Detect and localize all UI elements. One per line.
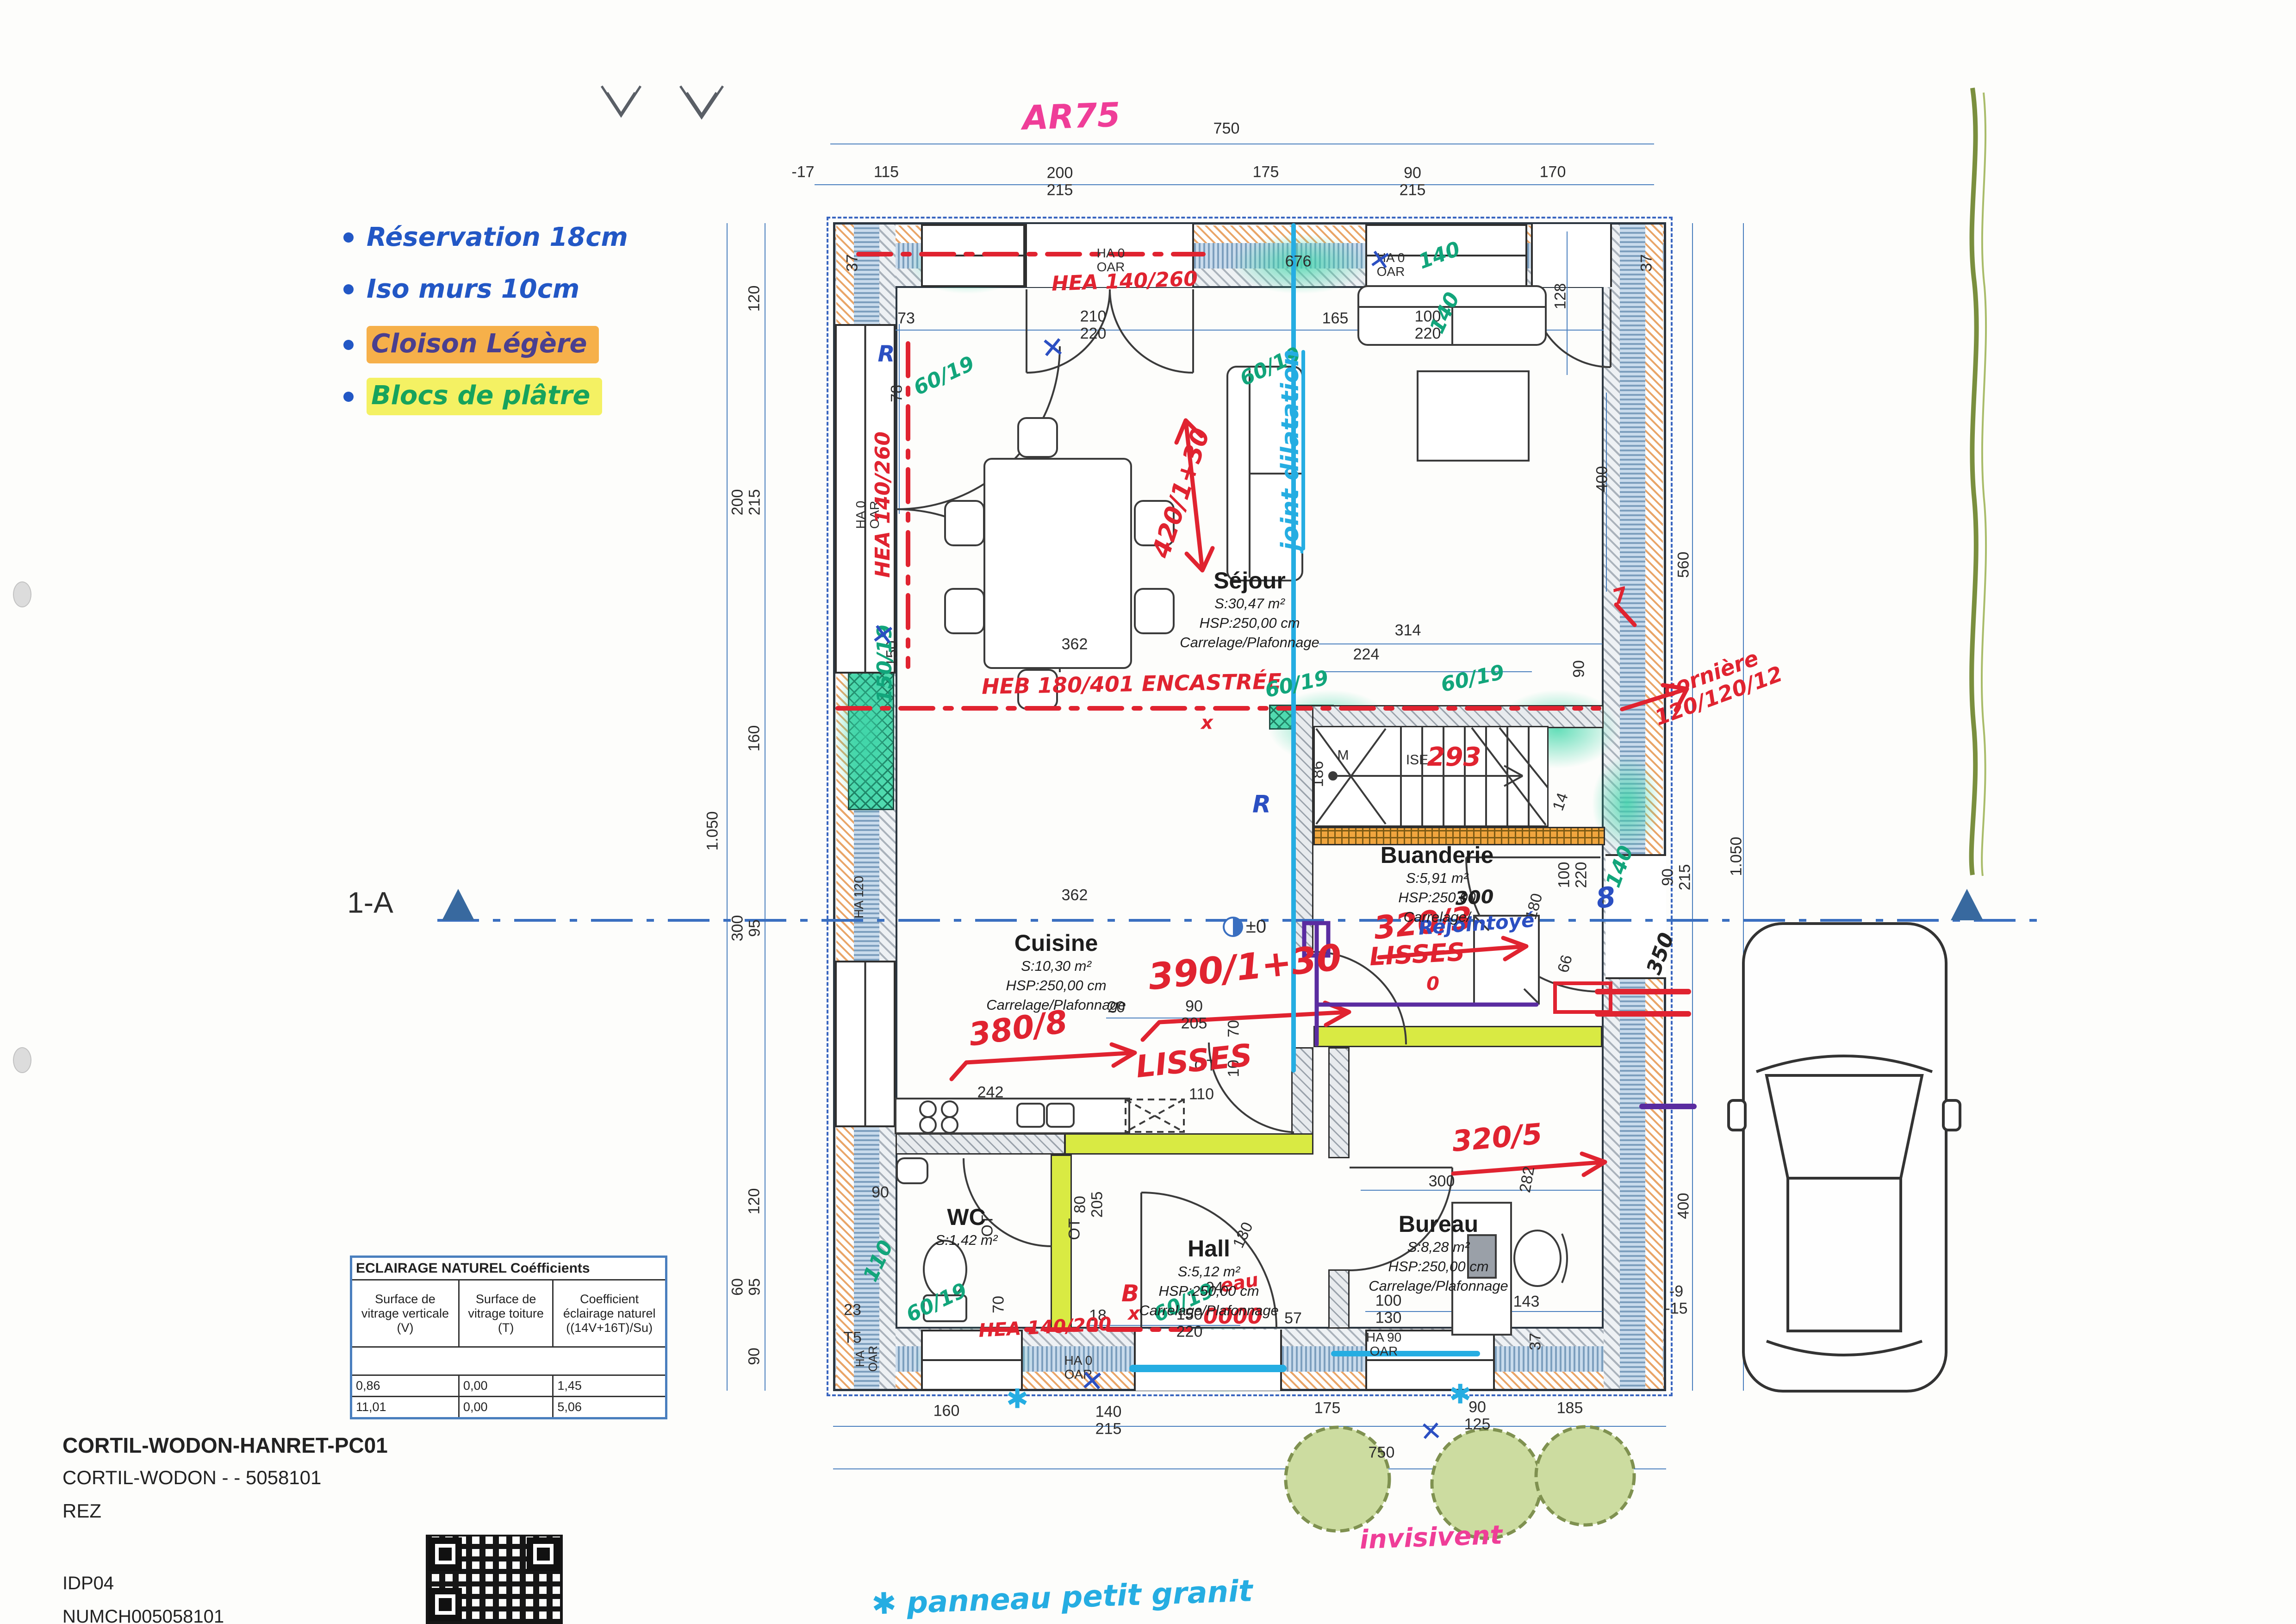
dim-label: M (1338, 748, 1349, 763)
dim-label: 57 (1284, 1310, 1302, 1327)
dining-table (984, 459, 1131, 668)
table-row: 0,860,001,45 (351, 1375, 666, 1397)
dim-label: 175 (1253, 164, 1279, 181)
dim-label: 100 220 (1556, 862, 1589, 888)
table-row: 11,010,005,06 (351, 1397, 666, 1418)
red-label: 320/5 (1451, 1118, 1543, 1157)
room-label-buanderie: BuanderieS:5,91 m²HSP:250,00Carrelage/ (1381, 842, 1494, 927)
dim-label: 143 (1513, 1293, 1540, 1311)
dim-label: T5 (843, 1330, 862, 1347)
title-block-line: NUMCH005058101 (62, 1606, 224, 1624)
note-text: Réservation 18cm (367, 222, 628, 252)
dim-label: 1.050 (704, 811, 722, 850)
chair (945, 589, 984, 633)
dim-label: 90 215 (1659, 864, 1693, 891)
dim-label: 120 (746, 286, 763, 312)
pen-label: ✕ (1079, 1365, 1105, 1398)
dim-label: 1.050 (1728, 837, 1745, 876)
dim-label: HA OAR (853, 1346, 879, 1372)
dim-label: 676 (1285, 253, 1312, 270)
room-label-bureau: BureauS:8,28 m²HSP:250,00 cmCarrelage/Pl… (1369, 1211, 1508, 1296)
coffee-table (1418, 371, 1529, 461)
dim-label: 314 (1395, 622, 1421, 639)
dim-label: 90 (746, 1348, 763, 1365)
chair (1018, 418, 1057, 457)
furniture (896, 286, 1567, 1335)
room-label-cuisine: CuisineS:10,30 m²HSP:250,00 cmCarrelage/… (986, 930, 1126, 1015)
table-cell: 0,00 (459, 1397, 553, 1418)
red-label: x (1128, 1304, 1140, 1324)
bullet-icon (343, 340, 354, 350)
dim-label: 186 (1310, 761, 1327, 787)
dim-label: 300 (1429, 1173, 1455, 1190)
table-header: Surface de vitrage toiture (T) (459, 1280, 553, 1347)
dim-label: 300 95 (729, 915, 763, 942)
red-label: B (1121, 1281, 1139, 1306)
car-top-view-icon (1729, 924, 1960, 1391)
table-cell: 0,86 (351, 1375, 459, 1397)
pen-label: ✕ (869, 618, 897, 652)
red-label: HEB 180/401 ENCASTRÉE (982, 670, 1282, 699)
dim-label: 115 (874, 164, 899, 181)
dim-label: -17 (791, 164, 814, 181)
handwritten-note: Réservation 18cm (343, 222, 628, 252)
table-header: Surface de vitrage verticale (V) (351, 1280, 459, 1347)
dim-label: 90 215 (1400, 164, 1426, 198)
dim-label: 400 (1594, 466, 1611, 493)
handwritten-note: Iso murs 10cm (343, 274, 579, 304)
dim-label: 175 (1314, 1400, 1341, 1417)
cyan-label: joint dilatation (1277, 350, 1303, 551)
bullet-icon (343, 232, 354, 243)
dim-label: ±0 (1246, 917, 1266, 937)
table-cell: 11,01 (351, 1397, 459, 1418)
dim-label: 37 (1638, 254, 1655, 272)
handwritten-note: Blocs de plâtre (343, 378, 602, 415)
dim-label: 120 (746, 1188, 763, 1215)
dim-label: 140 215 (1095, 1403, 1122, 1437)
red-label: HEA 140/260 (872, 431, 894, 578)
dim-label: 160 (933, 1403, 960, 1420)
dim-label: 224 (1353, 646, 1380, 663)
office-chair (1514, 1230, 1561, 1286)
qr-code (426, 1535, 563, 1624)
title-block-line: CORTIL-WODON - - 5058101 (62, 1467, 321, 1489)
dim-label: 37 (844, 254, 861, 272)
chair (945, 501, 984, 545)
scanned-floor-plan-sheet: ECLAIRAGE NATUREL Coéfficients Surface d… (0, 0, 2296, 1624)
pen-label: R (1252, 792, 1271, 818)
room-label-séjour: SéjourS:30,47 m²HSP:250,00 cmCarrelage/P… (1180, 567, 1319, 652)
section-triangle-left (442, 889, 474, 920)
table-title: ECLAIRAGE NATUREL Coéfficients (351, 1257, 666, 1280)
note-text: Cloison Légère (367, 326, 599, 363)
dim-label: 90 205 (1181, 998, 1207, 1031)
red-label: x (1201, 713, 1213, 733)
dim-label: 90 (871, 1184, 889, 1201)
handwritten-note: Cloison Légère (343, 326, 599, 363)
cyan-label: ✱ (1006, 1385, 1029, 1414)
car-mirror (1943, 1100, 1960, 1130)
cropped-sheet-fragment (602, 86, 723, 118)
dim-label: HA 120 (852, 876, 866, 918)
room-label-wc: WCS:1,42 m² (935, 1204, 997, 1250)
dim-label: 78 (889, 385, 906, 402)
red-label: 293 (1427, 743, 1481, 771)
dim-label: 60 95 (729, 1278, 763, 1296)
adjacent-sheet-edge (1972, 88, 1986, 876)
table-header: Coefficient éclairage naturel ((14V+16T)… (553, 1280, 666, 1347)
bullet-icon (343, 392, 354, 402)
dim-label: 23 (844, 1302, 861, 1319)
pen-label: 8 (1594, 882, 1618, 914)
red-label: LISSES (1369, 938, 1466, 970)
dim-label: 70 (990, 1296, 1008, 1313)
dim-label: ISE (1406, 753, 1428, 768)
dim-label: 165 (1322, 310, 1349, 327)
dim-label: 750 (1213, 120, 1240, 137)
note-text: Iso murs 10cm (367, 274, 579, 304)
marker-label: 1-A (347, 887, 393, 918)
table-cell: 0,00 (459, 1375, 553, 1397)
bullet-icon (343, 284, 354, 294)
section-triangle-right (1951, 889, 1983, 920)
dim-label: 70 (1226, 1020, 1243, 1037)
red-label: HEA 140/260 (1051, 268, 1198, 295)
dim-label: 73 (897, 310, 915, 327)
dim-label: 200 215 (729, 489, 763, 516)
room-label-hall: HallS:5,12 m²HSP:250,00 cmCarrelage/Plaf… (1139, 1235, 1279, 1320)
table-cell: 1,45 (553, 1375, 666, 1397)
daylight-coefficients-table: ECLAIRAGE NATUREL Coéfficients Surface d… (350, 1255, 667, 1419)
dim-label: 200 215 (1047, 164, 1073, 198)
title-block-line: IDP04 (62, 1573, 114, 1594)
cyan-label: ✱ (1449, 1380, 1472, 1409)
dim-label: 110 (1189, 1086, 1214, 1103)
pen-label: R (878, 343, 895, 367)
dim-label: 185 (1557, 1400, 1583, 1417)
dim-label: 400 (1675, 1193, 1692, 1219)
car-mirror (1729, 1100, 1745, 1130)
dim-label: 170 (1540, 164, 1566, 181)
chair (1135, 589, 1174, 633)
title-block-line: CORTIL-WODON-HANRET-PC01 (62, 1433, 388, 1458)
red-label: 0 (1426, 974, 1439, 994)
pen-label: ✕ (1039, 331, 1067, 365)
dim-label: OT (1066, 1218, 1083, 1240)
datum-symbol (1224, 918, 1242, 936)
dim-label: 560 (1675, 552, 1692, 578)
dim-label: 128 (1552, 283, 1569, 310)
dim-label: 100 130 (1375, 1292, 1402, 1326)
dim-label: 90 (1571, 660, 1588, 678)
dim-label: 750 (1369, 1444, 1395, 1462)
table-cell: 5,06 (553, 1397, 666, 1418)
dim-label: 242 (977, 1084, 1004, 1101)
dim-label: 362 (1062, 887, 1088, 904)
pen-label: ✕ (1419, 1416, 1444, 1447)
pink-label: AR75 (1022, 97, 1121, 136)
dim-label: 37 (1527, 1333, 1544, 1350)
note-text: Blocs de plâtre (367, 378, 602, 415)
dim-label: 80 205 (1071, 1192, 1105, 1218)
dim-label: -9 -15 (1665, 1283, 1687, 1317)
pink-label: invisivent (1359, 1521, 1503, 1554)
title-block-line: REZ (62, 1500, 101, 1522)
dim-label: 210 220 (1080, 308, 1107, 342)
wc-basin (897, 1158, 927, 1183)
dim-label: 362 (1062, 636, 1088, 653)
dim-label: HA 90 OAR (1366, 1330, 1401, 1358)
dim-label: 160 (746, 725, 763, 752)
